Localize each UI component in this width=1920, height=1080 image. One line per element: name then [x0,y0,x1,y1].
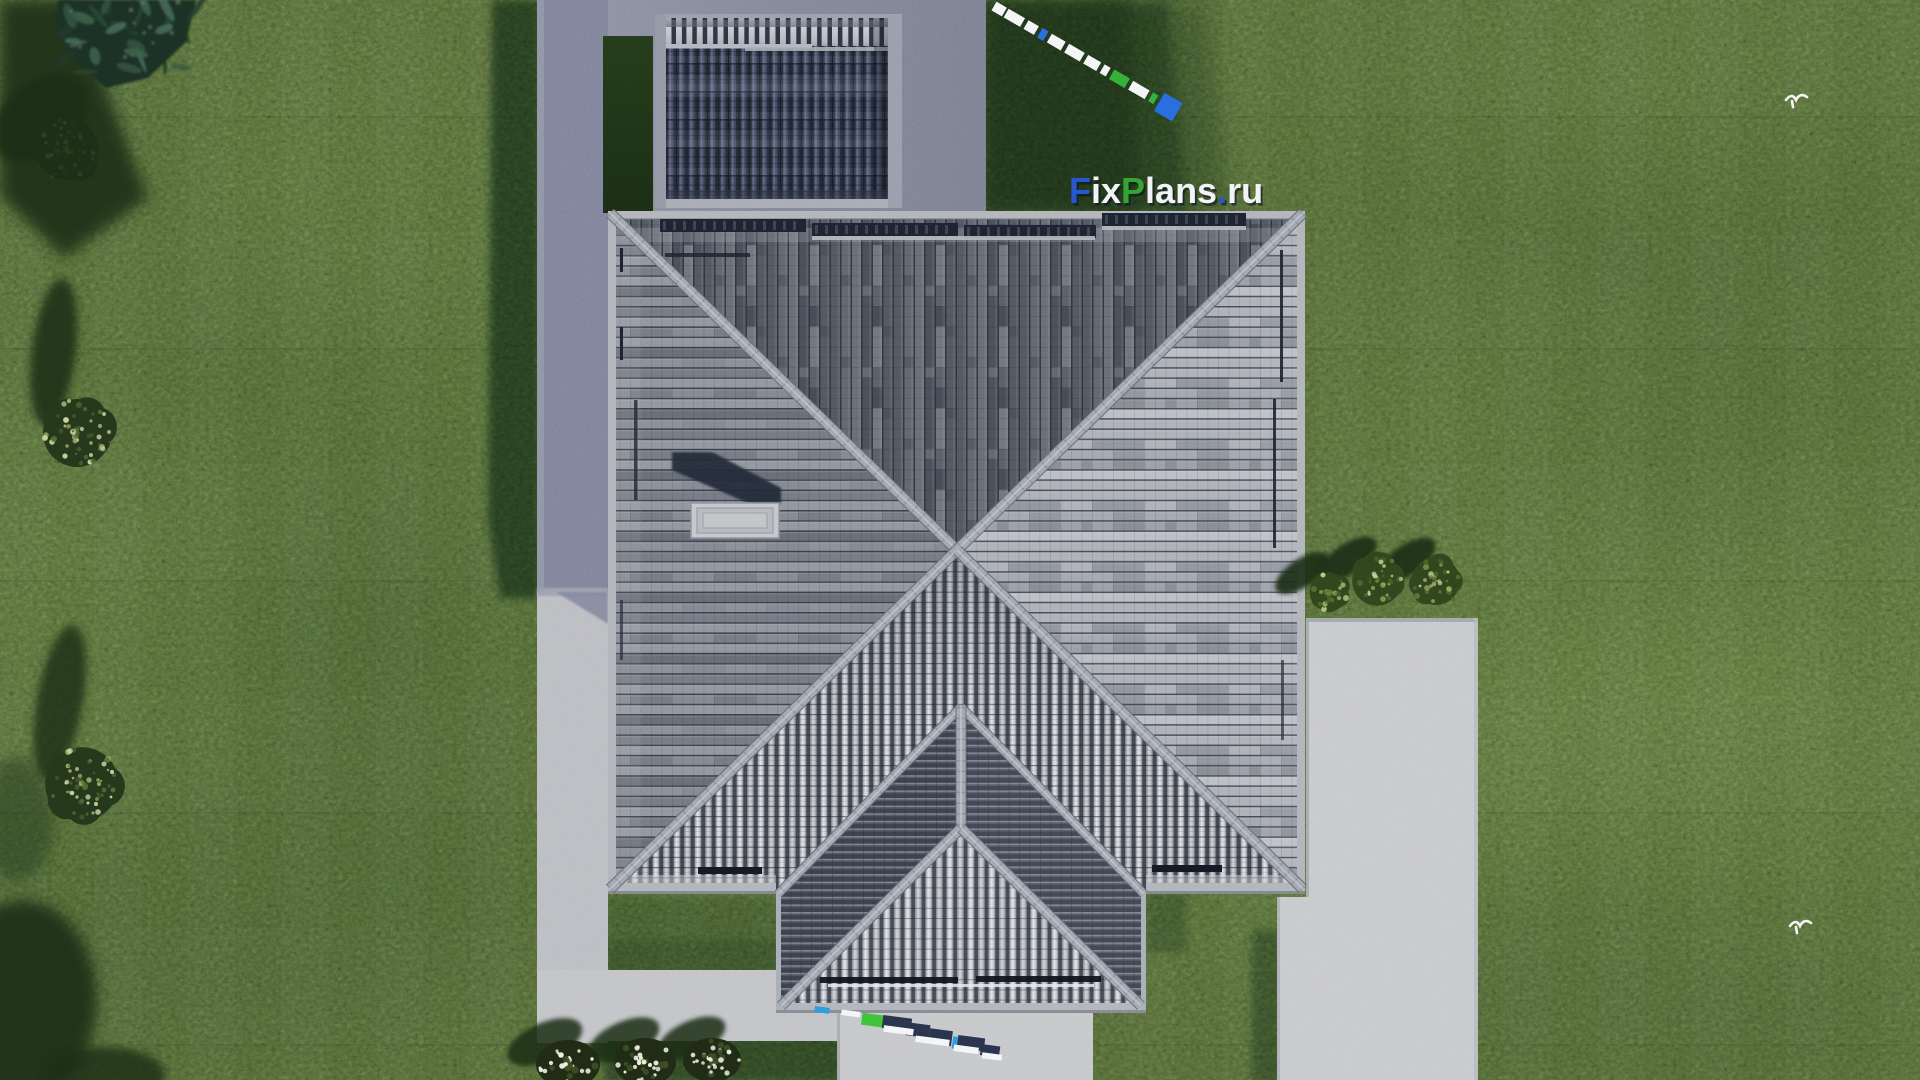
svg-text:FixPlans.ru: FixPlans.ru [1069,170,1263,211]
